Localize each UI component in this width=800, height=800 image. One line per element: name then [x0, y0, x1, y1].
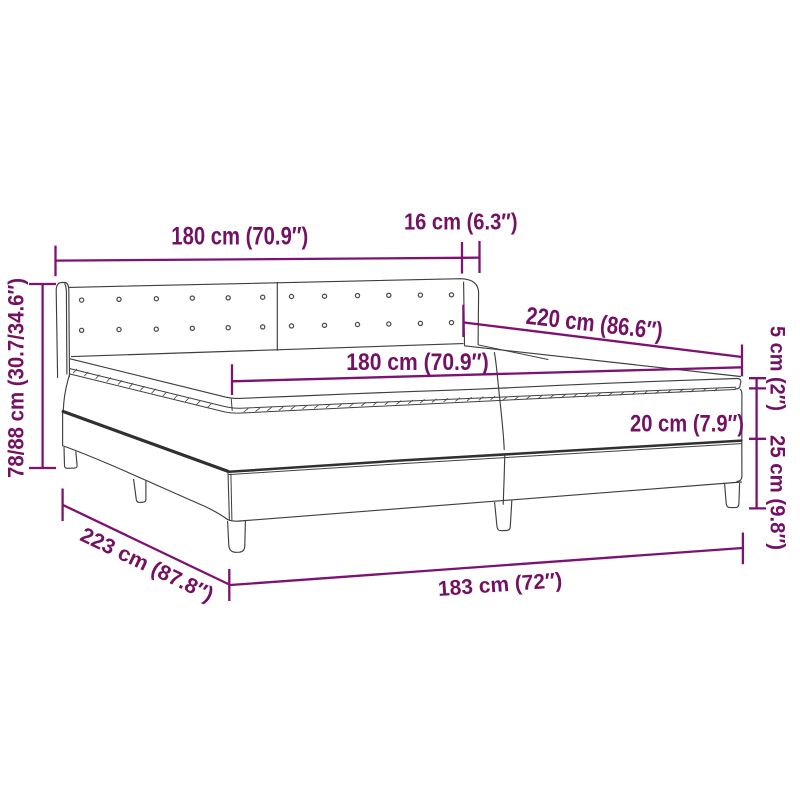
svg-text:180 cm (70.9″): 180 cm (70.9″) — [346, 349, 489, 376]
svg-text:16 cm (6.3″): 16 cm (6.3″) — [404, 209, 518, 235]
svg-text:20 cm (7.9″): 20 cm (7.9″) — [630, 411, 744, 438]
svg-text:180 cm (70.9″): 180 cm (70.9″) — [171, 224, 308, 251]
svg-text:78/88 cm (30.7/34.6″): 78/88 cm (30.7/34.6″) — [4, 278, 29, 478]
svg-text:5 cm (2″): 5 cm (2″) — [766, 326, 790, 411]
svg-text:25 cm (9.8″): 25 cm (9.8″) — [766, 435, 790, 550]
